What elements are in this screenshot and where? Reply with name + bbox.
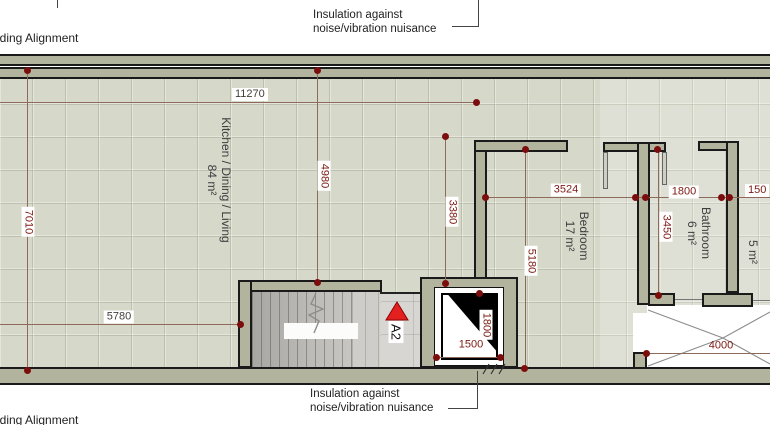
dimension-point bbox=[655, 292, 662, 299]
wall-bottom bbox=[0, 367, 770, 385]
insulation-note-line1: Insulation against bbox=[313, 8, 436, 22]
stair-elevator-edge-line bbox=[380, 292, 422, 294]
building-alignment-label-top: lding Alignment bbox=[0, 31, 78, 45]
room-name: Bathroom bbox=[699, 207, 713, 259]
dimension-point bbox=[482, 194, 489, 201]
dim-line-overall-width bbox=[0, 102, 476, 103]
wall-bedroom-bathroom-divider bbox=[637, 142, 650, 305]
dimension-point bbox=[24, 67, 31, 74]
room-label-bathroom: Bathroom 6 m² bbox=[685, 207, 713, 259]
building-alignment-label-bottom: lding Alignment bbox=[0, 413, 78, 425]
wall-terrace-top-stub bbox=[702, 293, 753, 307]
terrace-opening-symbol bbox=[647, 305, 770, 368]
dimension-point bbox=[476, 290, 483, 297]
dim-label-elevator-depth: 1800 bbox=[480, 310, 493, 340]
leader-top-vertical bbox=[478, 0, 479, 27]
dimension-point bbox=[442, 280, 449, 287]
dimension-point bbox=[726, 194, 733, 201]
leader-bottom-horizontal bbox=[448, 408, 478, 409]
room-area: 6 m² bbox=[685, 207, 699, 259]
wall-bedroom-left bbox=[474, 140, 487, 293]
insulation-note-line2: noise/vibration nuisance bbox=[310, 401, 433, 415]
dimension-point bbox=[24, 367, 31, 374]
bedroom-door-leaf bbox=[603, 152, 608, 189]
room-name: Kitchen / Dining / Living bbox=[219, 117, 233, 242]
dim-line-stair-zone bbox=[0, 324, 241, 325]
dim-label-kitchen-depth: 4980 bbox=[318, 161, 331, 191]
dimension-point bbox=[473, 99, 480, 106]
dim-label-bedroom-depth: 5180 bbox=[525, 246, 538, 276]
room-area: 5 m² bbox=[746, 240, 760, 264]
wall-bedroom-top bbox=[474, 140, 568, 152]
dim-label-overall-width: 11270 bbox=[232, 88, 268, 101]
leader-bottom-vertical bbox=[477, 371, 478, 409]
section-marker-triangle bbox=[385, 301, 409, 321]
dimension-point bbox=[718, 194, 725, 201]
dimension-point bbox=[497, 354, 504, 361]
dim-line-elevator-width bbox=[436, 357, 500, 358]
right-door-threshold bbox=[753, 300, 770, 301]
dim-label-bathroom-depth: 3450 bbox=[660, 212, 673, 242]
dim-label-elevator-width: 1500 bbox=[456, 339, 486, 352]
wall-stair-top bbox=[238, 280, 382, 292]
room-label-bedroom: Bedroom 17 m² bbox=[563, 212, 591, 261]
insulation-note-top: Insulation against noise/vibration nuisa… bbox=[313, 8, 436, 36]
dim-label-left-depth: 7010 bbox=[22, 207, 35, 237]
dimension-point bbox=[237, 321, 244, 328]
terrace-door-threshold bbox=[675, 299, 702, 300]
dimension-point bbox=[632, 194, 639, 201]
room-name: Bedroom bbox=[577, 212, 591, 261]
insulation-note-line1: Insulation against bbox=[310, 387, 433, 401]
bathroom-door-leaf bbox=[662, 152, 667, 185]
dim-label-right-clipped: 150 bbox=[745, 184, 769, 197]
terrace-door-gap bbox=[633, 313, 647, 352]
wall-top-inner bbox=[0, 67, 770, 79]
dimension-point bbox=[654, 146, 661, 153]
dim-label-bathroom-width: 1800 bbox=[669, 186, 699, 199]
insulation-note-line2: noise/vibration nuisance bbox=[313, 22, 436, 36]
insulation-note-bottom: Insulation against noise/vibration nuisa… bbox=[310, 387, 433, 415]
dim-line-terrace-width bbox=[646, 353, 770, 354]
dimension-point bbox=[314, 67, 321, 74]
room-label-kitchen: Kitchen / Dining / Living 84 m² bbox=[205, 117, 233, 242]
dim-label-terrace-width: 4000 bbox=[706, 340, 736, 353]
dimension-point bbox=[521, 365, 528, 372]
dimension-point bbox=[643, 350, 650, 357]
wall-bathroom-right bbox=[726, 141, 739, 293]
floor-plan: 11270 7010 4980 3380 3524 5180 1800 3450… bbox=[0, 0, 770, 425]
dimension-point bbox=[314, 279, 321, 286]
room-area: 84 m² bbox=[205, 117, 219, 242]
dimension-point bbox=[642, 194, 649, 201]
dim-label-stair-zone: 5780 bbox=[104, 311, 134, 324]
dimension-point bbox=[433, 354, 440, 361]
insulation-hatch-marks bbox=[480, 362, 510, 376]
section-marker-label: A2 bbox=[389, 321, 404, 343]
stair-break-line bbox=[300, 292, 330, 334]
room-label-right-room: 5 m² bbox=[746, 240, 760, 264]
room-area: 17 m² bbox=[563, 212, 577, 261]
edge-tick-top-left bbox=[57, 0, 58, 8]
dimension-point bbox=[522, 146, 529, 153]
dim-label-bedroom-width: 3524 bbox=[551, 184, 581, 197]
leader-top-horizontal bbox=[452, 26, 479, 27]
wall-top-outer bbox=[0, 54, 770, 66]
dim-label-bedroom-offset: 3380 bbox=[446, 197, 459, 227]
dimension-point bbox=[442, 133, 449, 140]
